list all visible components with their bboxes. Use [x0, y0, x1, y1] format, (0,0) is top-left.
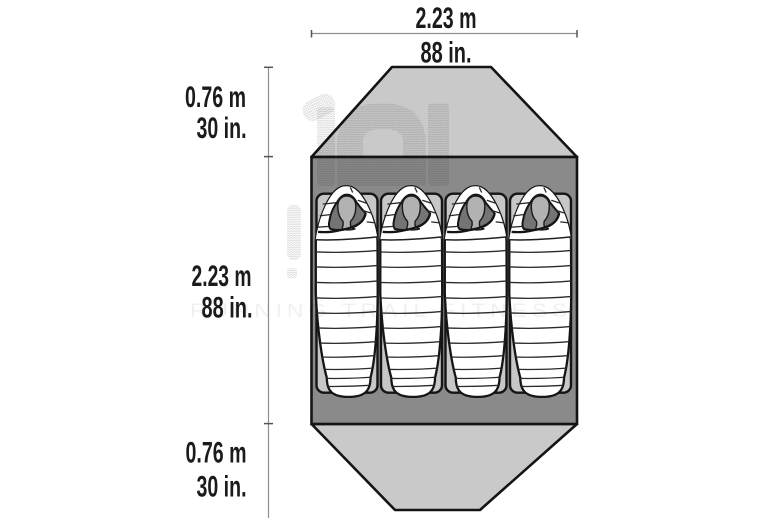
svg-text:88 in.: 88 in.: [202, 292, 253, 325]
svg-text:0.76 m: 0.76 m: [186, 437, 247, 470]
svg-text:30 in.: 30 in.: [197, 112, 247, 145]
svg-text:30 in.: 30 in.: [197, 471, 247, 504]
svg-text:2.23 m: 2.23 m: [416, 2, 477, 35]
svg-text:0.76 m: 0.76 m: [185, 81, 246, 114]
svg-text:88 in.: 88 in.: [421, 36, 472, 69]
svg-text:2.23 m: 2.23 m: [192, 260, 252, 293]
